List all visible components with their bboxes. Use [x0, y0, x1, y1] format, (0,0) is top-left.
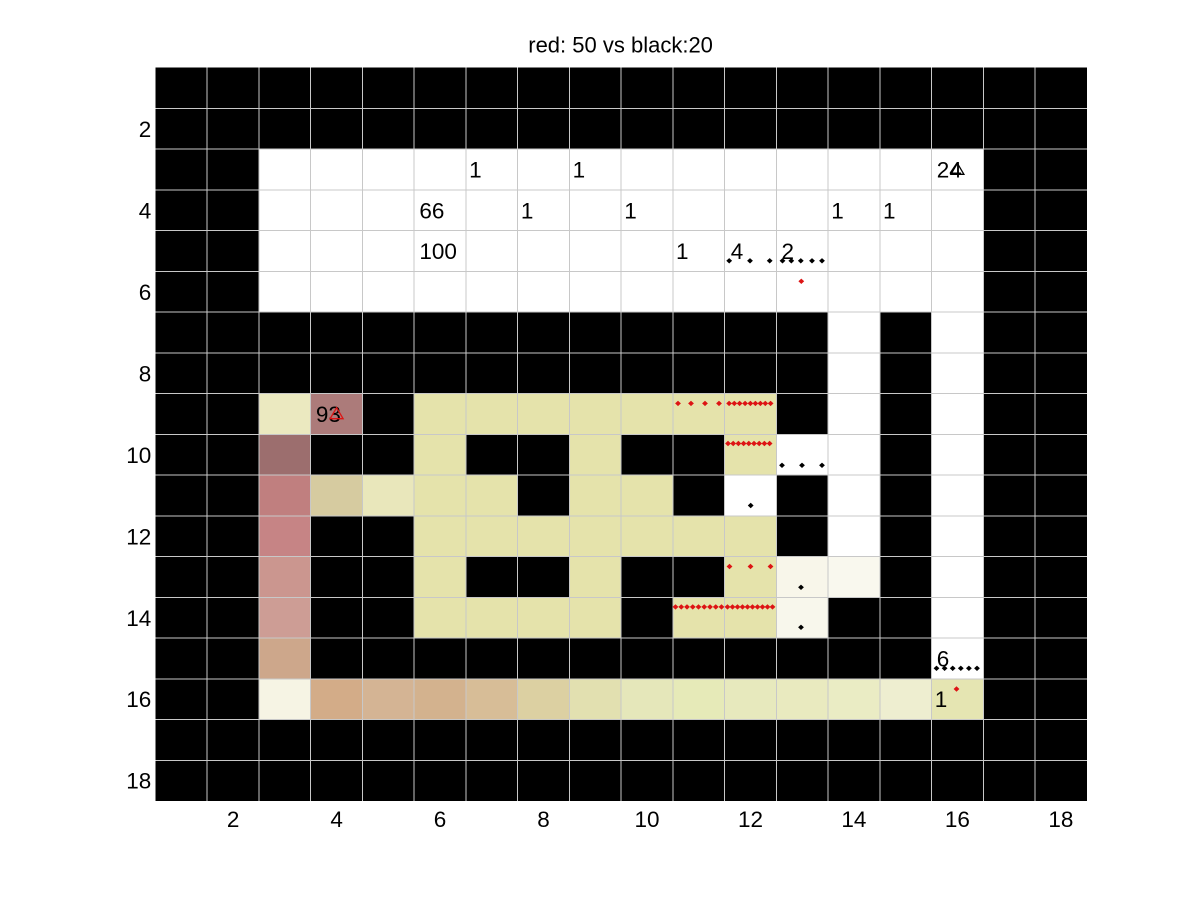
- svg-text:8: 8: [139, 361, 152, 386]
- svg-text:1: 1: [676, 239, 689, 264]
- svg-text:1: 1: [624, 198, 637, 223]
- svg-text:2: 2: [139, 117, 152, 142]
- svg-text:14: 14: [841, 807, 866, 832]
- svg-text:100: 100: [419, 239, 457, 264]
- svg-text:1: 1: [883, 198, 896, 223]
- svg-text:12: 12: [126, 524, 151, 549]
- svg-text:66: 66: [419, 198, 444, 223]
- svg-text:18: 18: [126, 769, 151, 794]
- svg-text:1: 1: [573, 158, 586, 183]
- svg-text:8: 8: [537, 807, 550, 832]
- svg-text:2: 2: [227, 807, 240, 832]
- svg-text:16: 16: [945, 807, 970, 832]
- svg-text:12: 12: [738, 807, 763, 832]
- svg-text:93: 93: [316, 402, 341, 427]
- svg-text:6: 6: [434, 807, 447, 832]
- svg-text:1: 1: [935, 687, 948, 712]
- svg-text:1: 1: [469, 158, 482, 183]
- svg-text:14: 14: [126, 606, 151, 631]
- svg-text:red: 50 vs black:20: red: 50 vs black:20: [528, 33, 713, 58]
- svg-text:1: 1: [831, 198, 844, 223]
- svg-text:4: 4: [330, 807, 343, 832]
- svg-text:1: 1: [521, 198, 534, 223]
- svg-text:16: 16: [126, 687, 151, 712]
- svg-text:4: 4: [139, 198, 152, 223]
- svg-text:4: 4: [731, 239, 744, 264]
- svg-text:24: 24: [937, 158, 962, 183]
- svg-text:10: 10: [126, 443, 151, 468]
- svg-text:10: 10: [634, 807, 659, 832]
- svg-text:6: 6: [139, 280, 152, 305]
- svg-text:18: 18: [1048, 807, 1073, 832]
